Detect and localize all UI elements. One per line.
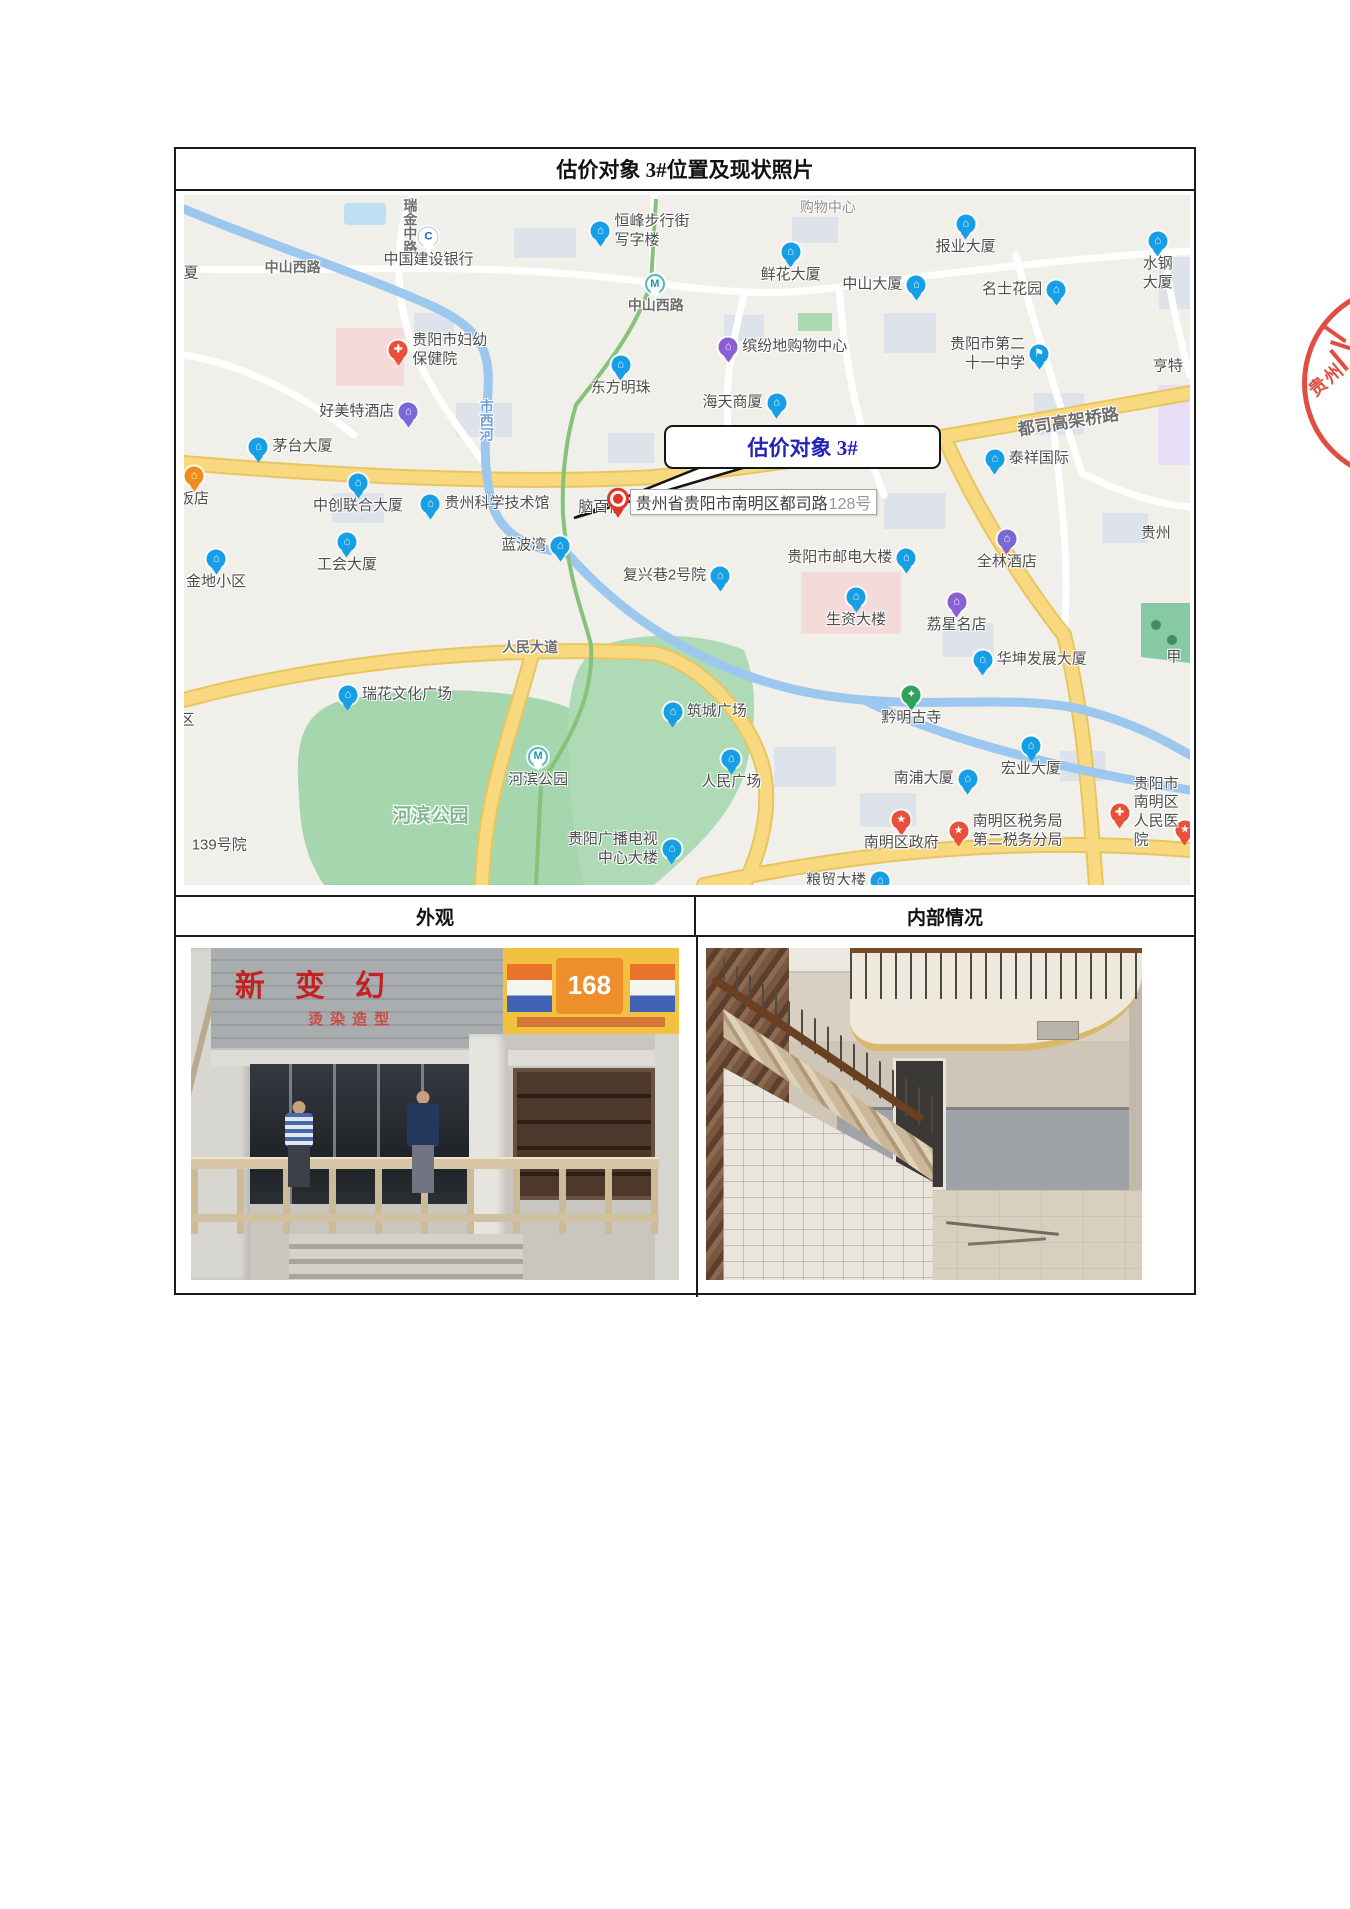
map-poi-pin-shop: ⌂ bbox=[947, 593, 966, 612]
map-poi-label: 恒峰步行街 写字楼 bbox=[614, 212, 689, 250]
map-poi-label: 饭店 bbox=[184, 490, 209, 509]
map-poi-pin-building: ⌂ bbox=[1022, 737, 1041, 756]
ext-sign-main: 新变幻 bbox=[235, 961, 415, 1005]
map-poi-label: 华坤发展大厦 bbox=[997, 651, 1087, 670]
map-poi-pin-building: ⌂ bbox=[847, 588, 866, 607]
int-mezzanine-sign bbox=[1037, 1021, 1078, 1040]
map-poi-label: 贵阳广播电视 中心大楼 bbox=[568, 830, 658, 868]
map-poi-pin-building: ⌂ bbox=[985, 449, 1004, 468]
table-title: 估价对象 3#位置及现状照片 bbox=[556, 154, 813, 184]
map-poi-label: 工会大厦 bbox=[317, 556, 377, 575]
map-road-label: 夏 bbox=[184, 262, 199, 283]
map-poi-pin-building: ⌂ bbox=[767, 394, 786, 413]
map-poi-pin-metro: M bbox=[645, 274, 665, 294]
map-poi-pin-building: ⌂ bbox=[871, 871, 890, 885]
map-road-label: 甲 bbox=[1166, 645, 1181, 666]
ext-entrance-steps bbox=[289, 1234, 523, 1280]
map-poi-label: 好美特酒店 bbox=[319, 402, 394, 421]
map-poi-label: 茅台大厦 bbox=[272, 437, 332, 456]
document-page: 估价对象 3#位置及现状照片 bbox=[0, 0, 1350, 1909]
map-poi-label: 人民广场 bbox=[701, 773, 761, 792]
map-poi-label: 贵阳市南明区 人民医院 bbox=[1134, 775, 1190, 850]
map-poi-pin-star: ★ bbox=[892, 811, 911, 830]
map-poi-label: 河滨公园 bbox=[508, 771, 568, 790]
map-row: 中山西路瑞金中路中山西路都司高架桥路人民大道市西河河滨公园购物中心亨特贵州甲夏区… bbox=[176, 191, 1194, 897]
map-poi-pin-building: ⌂ bbox=[1148, 232, 1167, 251]
map-poi-pin-temple: ✦ bbox=[902, 685, 921, 704]
map-poi-pin-building: ⌂ bbox=[711, 566, 730, 585]
map-poi-label: 全林酒店 bbox=[977, 553, 1037, 572]
map-poi-label: 复兴巷2号院 bbox=[623, 567, 706, 586]
map-poi-pin-building: ⌂ bbox=[897, 548, 916, 567]
map-poi-label: 中创联合大厦 bbox=[313, 497, 403, 516]
map-poi-pin-building: ⌂ bbox=[349, 473, 368, 492]
map-poi-pin-building: ⌂ bbox=[207, 550, 226, 569]
map-poi-pin-building: ⌂ bbox=[591, 221, 610, 240]
map-road-label: 中山西路 bbox=[265, 257, 321, 277]
map-poi-label: 泰祥国际 bbox=[1009, 449, 1069, 468]
map-poi-pin-bank: C bbox=[418, 227, 439, 248]
subject-callout: 估价对象 3# bbox=[664, 425, 942, 469]
location-map: 中山西路瑞金中路中山西路都司高架桥路人民大道市西河河滨公园购物中心亨特贵州甲夏区… bbox=[184, 195, 1190, 885]
map-poi-label: 金地小区 bbox=[186, 573, 246, 592]
map-poi-pin-cross: ✚ bbox=[1110, 803, 1129, 822]
map-road-label: 人民大道 bbox=[502, 637, 558, 657]
map-poi-pin-star: ★ bbox=[949, 822, 968, 841]
map-road-label: 区 bbox=[184, 709, 195, 730]
map-poi-pin-metro: M bbox=[528, 747, 548, 767]
map-road-label: 贵州 bbox=[1141, 521, 1171, 542]
interior-photo bbox=[706, 948, 1142, 1280]
map-poi-label: 贵州科学技术馆 bbox=[444, 495, 549, 514]
map-poi-label: 贵阳市妇幼 保健院 bbox=[412, 332, 487, 370]
map-poi-pin-building: ⌂ bbox=[907, 276, 926, 295]
map-road-label: 河滨公园 bbox=[392, 800, 468, 827]
exterior-header: 外观 bbox=[176, 897, 696, 935]
ext-banner-number: 168 bbox=[556, 958, 623, 1013]
map-road-label: 市西河 bbox=[477, 399, 497, 441]
map-poi-pin-org: ⌂ bbox=[185, 466, 204, 485]
map-poi-label: 瑞花文化广场 bbox=[362, 685, 452, 704]
table-title-row: 估价对象 3#位置及现状照片 bbox=[176, 149, 1194, 191]
map-poi-label: 蓝波湾 bbox=[501, 537, 546, 556]
map-poi-label: 海天商厦 bbox=[703, 394, 763, 413]
address-text: 贵州省贵阳市南明区都司路 bbox=[636, 490, 828, 514]
ext-banner-subtext bbox=[517, 1017, 665, 1027]
map-poi-pin-building: ⌂ bbox=[956, 214, 975, 233]
address-tooltip: 贵州省贵阳市南明区都司路 128号 bbox=[630, 489, 878, 515]
ext-banner-stripes bbox=[630, 964, 676, 1012]
ext-banner-stripes bbox=[507, 964, 553, 1012]
map-poi-label: 贵阳市第二 十一中学 bbox=[950, 336, 1025, 374]
map-poi-label: 贵阳市邮电大楼 bbox=[787, 549, 892, 568]
map-poi-pin-building: ⌂ bbox=[337, 533, 356, 552]
map-poi-label: 荔星名店 bbox=[927, 616, 987, 635]
map-poi-label: 黔明古寺 bbox=[881, 709, 941, 728]
map-poi-pin-building: ⌂ bbox=[663, 702, 682, 721]
map-poi-label: 水钢大厦 bbox=[1142, 255, 1174, 293]
map-poi-label: 粮贸大楼 bbox=[806, 871, 866, 885]
map-poi-pin-building: ⌂ bbox=[338, 685, 357, 704]
subject-location-marker bbox=[607, 487, 629, 509]
photo-row: 新变幻 烫染造型 168 bbox=[176, 937, 1194, 1297]
map-poi-label: 鲜花大厦 bbox=[761, 266, 821, 285]
map-poi-pin-shop: ⌂ bbox=[719, 338, 738, 357]
map-poi-label: 中山大厦 bbox=[842, 276, 902, 295]
map-poi-label: 南浦大厦 bbox=[894, 770, 954, 789]
official-red-seal: 贵州 bbox=[1292, 280, 1350, 485]
map-poi-pin-building: ⌂ bbox=[611, 356, 630, 375]
map-poi-pin-building: ⌂ bbox=[249, 437, 268, 456]
exterior-photo: 新变幻 烫染造型 168 bbox=[191, 948, 679, 1280]
map-poi-pin-building: ⌂ bbox=[421, 495, 440, 514]
map-poi-label: 东方明珠 bbox=[591, 379, 651, 398]
map-poi-label: 缤纷地购物中心 bbox=[742, 338, 847, 357]
map-poi-label: 筑城广场 bbox=[687, 702, 747, 721]
map-road-label: 瑞金中路 bbox=[400, 198, 420, 254]
photo-cell-divider bbox=[696, 937, 698, 1297]
map-poi-pin-building: ⌂ bbox=[551, 537, 570, 556]
map-poi-pin-building: ⌂ bbox=[1047, 281, 1066, 300]
map-poi-label: 南明区税务局 第二税务分局 bbox=[973, 812, 1063, 850]
person-navy-shirt bbox=[406, 1091, 440, 1201]
map-road-label: 139号院 bbox=[192, 833, 247, 854]
map-poi-pin-cross: ✚ bbox=[389, 341, 408, 360]
map-poi-pin-building: ⌂ bbox=[662, 840, 681, 859]
map-poi-label: 生资大楼 bbox=[826, 611, 886, 630]
map-poi-pin-hotel: ⌂ bbox=[997, 530, 1016, 549]
ext-railing-bottom bbox=[191, 1214, 659, 1222]
person-striped-shirt bbox=[284, 1101, 314, 1191]
int-mezzanine-railing bbox=[850, 948, 1142, 999]
map-poi-pin-building: ⌂ bbox=[781, 243, 800, 262]
map-road-label: 亨特 bbox=[1153, 355, 1183, 376]
map-poi-pin-hotel: ⌂ bbox=[399, 402, 418, 421]
map-poi-pin-building: ⌂ bbox=[973, 651, 992, 670]
photo-location-table: 估价对象 3#位置及现状照片 bbox=[174, 147, 1196, 1295]
section-header-row: 外观 内部情况 bbox=[176, 897, 1194, 937]
map-poi-label: 报业大厦 bbox=[936, 238, 996, 257]
map-poi-pin-flag: ⚑ bbox=[1030, 345, 1049, 364]
map-poi-label: 中国建设银行 bbox=[383, 251, 473, 270]
map-road-label: 购物中心 bbox=[800, 197, 856, 217]
interior-header: 内部情况 bbox=[696, 897, 1194, 935]
ext-sign-sub: 烫染造型 bbox=[308, 1008, 396, 1029]
map-poi-pin-building: ⌂ bbox=[722, 749, 741, 768]
address-number: 128号 bbox=[829, 490, 872, 514]
ext-banner: 168 bbox=[503, 948, 679, 1034]
map-poi-label: 宏业大厦 bbox=[1001, 760, 1061, 779]
map-poi-label: 名士花园 bbox=[982, 281, 1042, 300]
map-poi-pin-building: ⌂ bbox=[958, 770, 977, 789]
map-poi-label: 南明区政府 bbox=[864, 834, 939, 853]
